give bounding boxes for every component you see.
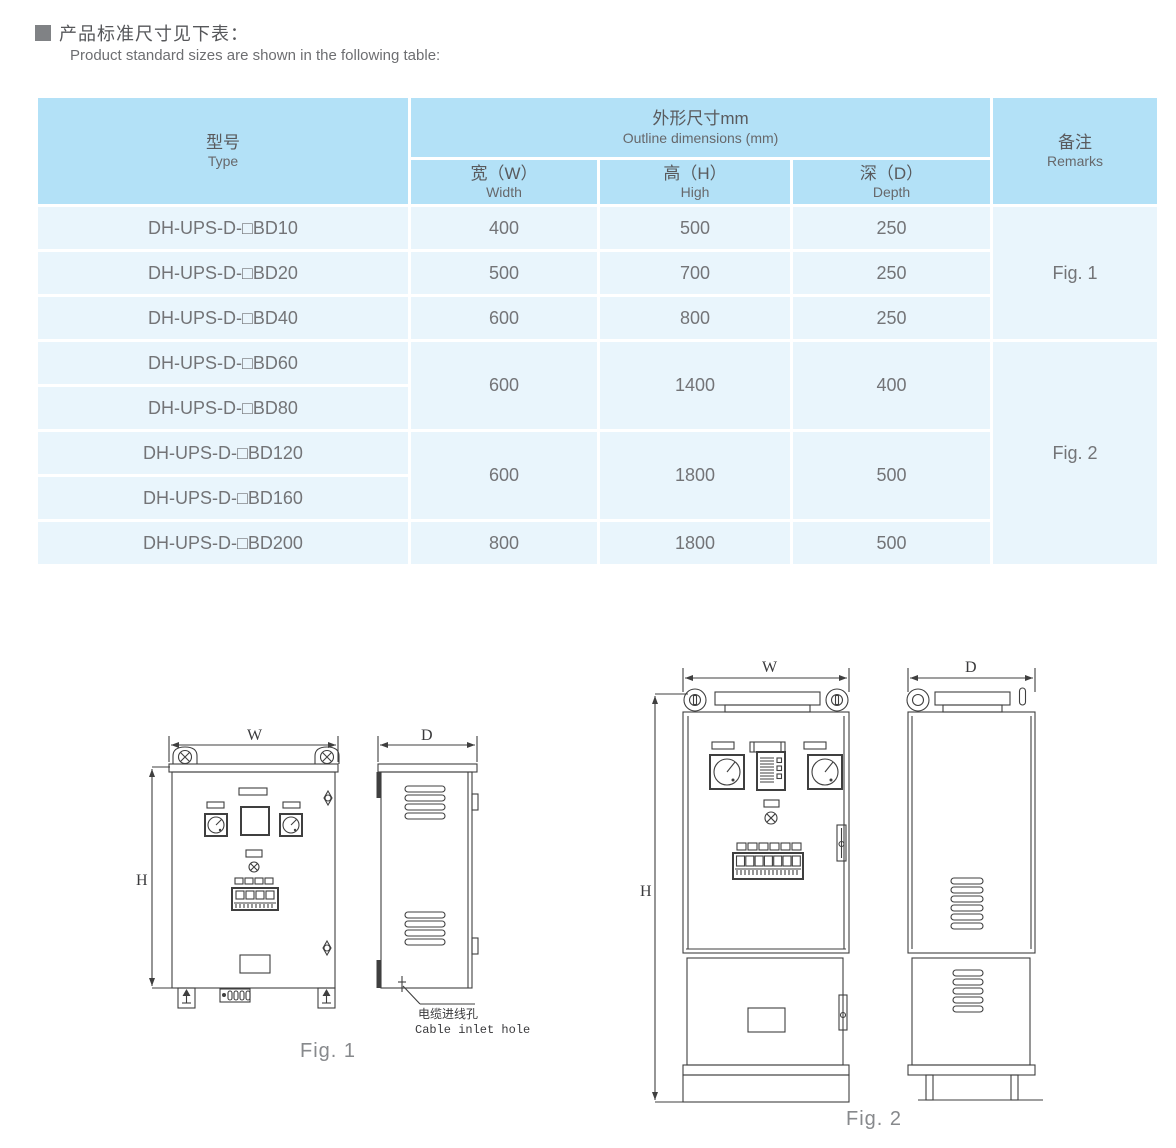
header-width: 宽（W） Width	[410, 159, 599, 206]
cell-h: 1800	[599, 521, 792, 566]
cell-type: DH-UPS-D-□BD10	[37, 206, 410, 251]
cell-h: 800	[599, 296, 792, 341]
table-row: DH-UPS-D-□BD120 600 1800 500	[37, 431, 1159, 476]
indicator-lamp-icon	[764, 800, 779, 824]
nameplate	[748, 1008, 785, 1032]
cable-gland-block	[220, 989, 250, 1002]
fig1-h-label: H	[136, 872, 148, 889]
cell-remarks-fig2: Fig. 2	[992, 341, 1159, 566]
header-outline: 外形尺寸mm Outline dimensions (mm)	[410, 97, 992, 159]
figure-1-drawing: W H D 电缆进线孔 Cable inlet hole	[130, 720, 530, 1040]
base-leg	[1011, 1075, 1018, 1100]
header-remarks-en: Remarks	[993, 153, 1157, 170]
header-remarks-zh: 备注	[993, 132, 1157, 153]
fig2-w-label: W	[762, 659, 778, 676]
latch-icon	[323, 941, 331, 955]
eye-bolt-icon	[684, 689, 706, 711]
table-row: DH-UPS-D-□BD20 500 700 250	[37, 251, 1159, 296]
upper-cabinet	[683, 712, 849, 953]
header-type-zh: 型号	[38, 132, 408, 153]
fig1-side-view	[377, 736, 479, 1004]
fig2-caption: Fig. 2	[846, 1108, 902, 1131]
upper-side-body	[908, 712, 1035, 953]
cell-d-merged: 500	[792, 431, 992, 521]
eye-bolt-icon	[826, 689, 848, 711]
top-rail	[169, 764, 338, 772]
section-title-en: Product standard sizes are shown in the …	[70, 47, 440, 64]
section-marker-square	[35, 25, 51, 41]
bottom-rail	[683, 1065, 849, 1075]
label-slot	[239, 788, 267, 795]
header-outline-en: Outline dimensions (mm)	[411, 130, 990, 147]
louvers-lower	[953, 970, 983, 1012]
table-header-row-1: 型号 Type 外形尺寸mm Outline dimensions (mm) 备…	[37, 97, 1159, 159]
cell-w: 800	[410, 521, 599, 566]
louvers-bottom	[405, 912, 445, 945]
display-panel	[241, 807, 269, 835]
base-leg	[926, 1075, 933, 1100]
header-remarks: 备注 Remarks	[992, 97, 1159, 206]
gauge-left-icon	[205, 802, 227, 836]
fig1-dim-h	[152, 767, 172, 988]
fig2-front-view	[655, 668, 849, 1102]
bottom-window	[240, 955, 270, 973]
louvers-middle	[951, 878, 983, 929]
hinge-icon	[472, 794, 478, 810]
top-channel	[715, 692, 820, 705]
rear-post	[1020, 688, 1026, 705]
fig1-d-label: D	[421, 727, 433, 744]
figure-2-drawing: W H D	[636, 648, 1066, 1123]
header-depth: 深（D） Depth	[792, 159, 992, 206]
fig2-h-label: H	[640, 883, 652, 900]
header-width-en: Width	[411, 184, 597, 201]
table-row: DH-UPS-D-□BD10 400 500 250 Fig. 1	[37, 206, 1159, 251]
header-width-zh: 宽（W）	[411, 163, 597, 184]
header-type: 型号 Type	[37, 97, 410, 206]
cell-d: 250	[792, 296, 992, 341]
top-channel-lip	[725, 705, 810, 712]
eye-bolt-icon	[907, 689, 929, 711]
page: 产品标准尺寸见下表： Product standard sizes are sh…	[0, 0, 1176, 1148]
bottom-rail	[908, 1065, 1035, 1075]
plinth-base	[683, 1075, 849, 1102]
hinge-icon	[472, 938, 478, 954]
fig1-w-label: W	[247, 727, 263, 744]
cell-w: 600	[410, 296, 599, 341]
fig1-front-view	[152, 736, 339, 1008]
cell-h: 700	[599, 251, 792, 296]
cell-type: DH-UPS-D-□BD40	[37, 296, 410, 341]
mount-plate-bottom	[377, 960, 381, 988]
louvers-top	[405, 786, 445, 819]
table-row: DH-UPS-D-□BD40 600 800 250	[37, 296, 1159, 341]
mount-plate-top	[377, 772, 381, 798]
cell-d: 500	[792, 521, 992, 566]
cell-type: DH-UPS-D-□BD120	[37, 431, 410, 476]
table-row: DH-UPS-D-□BD60 600 1400 400 Fig. 2	[37, 341, 1159, 386]
gauge-right-icon	[804, 742, 842, 789]
label-slot	[750, 742, 785, 752]
size-table: 型号 Type 外形尺寸mm Outline dimensions (mm) 备…	[35, 95, 1160, 567]
cable-inlet-leader	[398, 976, 475, 1004]
cell-h-merged: 1800	[599, 431, 792, 521]
cable-inlet-label-zh: 电缆进线孔	[418, 1007, 478, 1021]
header-type-en: Type	[38, 153, 408, 170]
fig2-d-label: D	[965, 659, 977, 676]
cell-type: DH-UPS-D-□BD160	[37, 476, 410, 521]
fig1-mount-tab-right	[315, 747, 339, 764]
gauge-left-icon	[710, 742, 744, 789]
fig1-mount-tab-left	[173, 747, 197, 764]
cell-d: 250	[792, 251, 992, 296]
gauge-right-icon	[280, 802, 302, 836]
header-depth-zh: 深（D）	[793, 163, 990, 184]
door-handle	[837, 825, 846, 861]
section-title-row: 产品标准尺寸见下表：	[35, 20, 249, 46]
indicator-lamp-icon	[246, 850, 262, 872]
top-channel	[935, 692, 1010, 705]
lower-door	[687, 958, 843, 1065]
foot-bracket-left	[178, 988, 195, 1008]
cell-w: 500	[410, 251, 599, 296]
section-title-zh: 产品标准尺寸见下表：	[59, 20, 249, 46]
terminal-block	[232, 878, 278, 910]
controller-panel	[757, 752, 785, 790]
cell-type: DH-UPS-D-□BD20	[37, 251, 410, 296]
cell-d: 250	[792, 206, 992, 251]
header-high-en: High	[600, 184, 790, 201]
table-row: DH-UPS-D-□BD200 800 1800 500	[37, 521, 1159, 566]
side-top-cap	[378, 764, 477, 772]
cell-w-merged: 600	[410, 341, 599, 431]
cell-w: 400	[410, 206, 599, 251]
terminal-block	[733, 843, 803, 879]
header-depth-en: Depth	[793, 184, 990, 201]
cell-remarks-fig1: Fig. 1	[992, 206, 1159, 341]
cell-w-merged: 600	[410, 431, 599, 521]
cell-type: DH-UPS-D-□BD80	[37, 386, 410, 431]
cell-type: DH-UPS-D-□BD200	[37, 521, 410, 566]
fig2-side-view	[907, 668, 1043, 1100]
top-channel-lip	[943, 705, 1002, 712]
latch-icon	[324, 791, 332, 805]
header-outline-zh: 外形尺寸mm	[411, 108, 990, 129]
cell-d-merged: 400	[792, 341, 992, 431]
fig1-caption: Fig. 1	[300, 1040, 356, 1063]
cable-inlet-label-en: Cable inlet hole	[415, 1023, 530, 1037]
cell-h-merged: 1400	[599, 341, 792, 431]
cell-type: DH-UPS-D-□BD60	[37, 341, 410, 386]
header-high-zh: 高（H）	[600, 163, 790, 184]
foot-bracket-right	[318, 988, 335, 1008]
header-high: 高（H） High	[599, 159, 792, 206]
cell-h: 500	[599, 206, 792, 251]
